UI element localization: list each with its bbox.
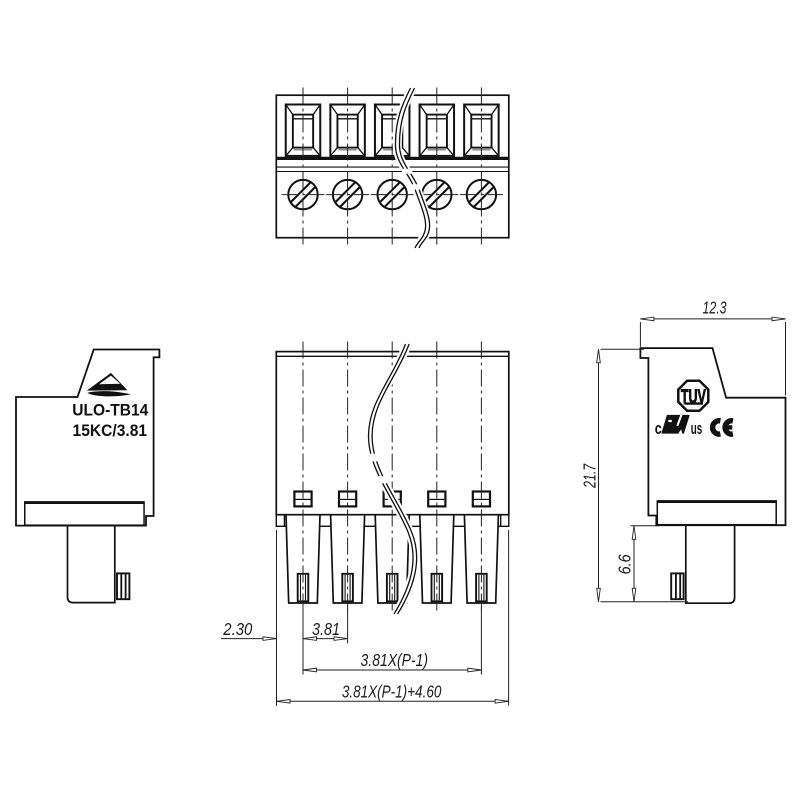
svg-text:3.81: 3.81 <box>312 619 340 639</box>
svg-text:ULO-TB14: ULO-TB14 <box>72 401 149 419</box>
svg-text:3.81X(P-1): 3.81X(P-1) <box>361 650 429 670</box>
svg-text:6.6: 6.6 <box>615 554 635 574</box>
svg-text:c: c <box>655 419 662 438</box>
svg-text:3.81X(P-1)+4.60: 3.81X(P-1)+4.60 <box>342 681 442 701</box>
svg-text:2.30: 2.30 <box>222 619 252 639</box>
svg-text:12.3: 12.3 <box>703 297 727 317</box>
svg-text:15KC/3.81: 15KC/3.81 <box>73 422 148 440</box>
svg-text:us: us <box>691 419 703 438</box>
svg-text:21.7: 21.7 <box>580 463 600 489</box>
